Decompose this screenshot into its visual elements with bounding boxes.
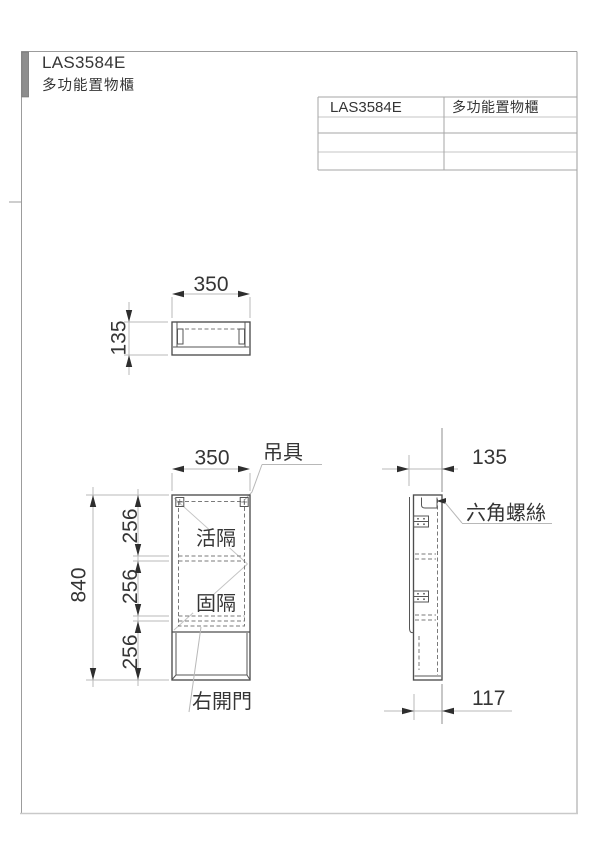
hex-screw-label: 六角螺絲	[466, 502, 546, 525]
header-product-name: 多功能置物櫃	[42, 77, 135, 94]
dim-arrow	[238, 466, 250, 472]
top-view-width-value: 350	[193, 273, 228, 296]
dim-arrow	[442, 708, 454, 714]
shelf-labels: 活隔 固隔	[193, 527, 237, 615]
side-view-cabinet-outline	[410, 495, 443, 680]
hanger-label: 吊具	[263, 442, 303, 464]
header-model-code: LAS3584E	[42, 53, 126, 72]
side-view: 135	[382, 428, 552, 724]
front-view-width-value: 350	[194, 447, 229, 470]
total-height-value: 840	[68, 567, 91, 602]
dim-arrow	[135, 544, 141, 556]
dim-arrow	[135, 495, 141, 507]
fixed-shelf-label: 固隔	[196, 592, 236, 615]
dim-arrow	[126, 355, 132, 367]
dim-arrow	[172, 291, 184, 297]
dim-arrow	[442, 466, 454, 472]
top-view-cabinet-outline	[172, 322, 250, 355]
front-view-cabinet-outline	[172, 495, 250, 680]
dim-arrow	[238, 291, 250, 297]
table-model-cell: LAS3584E	[330, 99, 402, 116]
top-view-depth-value: 135	[108, 320, 131, 355]
door-label: 右開門	[192, 690, 252, 713]
side-view-depth-dimension: 135	[382, 428, 507, 492]
hanger-bracket-left	[178, 329, 184, 344]
table-product-cell: 多功能置物櫃	[452, 99, 539, 115]
leader-arrow	[437, 498, 447, 504]
hanger-callout: 吊具	[245, 442, 323, 500]
hanger-hardware-right	[240, 498, 248, 507]
drawing-sheet: LAS3584E 多功能置物櫃 LAS3584E 多功能置物櫃 350 135	[0, 0, 600, 863]
movable-shelf-label: 活隔	[196, 527, 236, 550]
segment-bottom-value: 256	[119, 634, 142, 669]
top-view-width-dimension: 350	[172, 273, 250, 318]
shelf-connector-top	[414, 516, 429, 527]
hanger-bracket-side	[422, 498, 438, 509]
dim-arrow	[397, 466, 409, 472]
segment-top-value: 256	[119, 508, 142, 543]
front-view-width-dimension: 350	[172, 447, 250, 492]
dim-arrow	[135, 604, 141, 616]
top-view-depth-dimension: 135	[108, 302, 169, 375]
dim-arrow	[90, 668, 96, 680]
dim-arrow	[90, 495, 96, 507]
binding-bar	[22, 52, 29, 97]
hanger-bracket-right	[239, 329, 245, 344]
front-view-height-dimensions: 840 256 256 256	[68, 487, 170, 687]
sheet-header: LAS3584E 多功能置物櫃	[42, 53, 135, 94]
dim-arrow	[172, 466, 184, 472]
door-callout: 右開門	[189, 627, 252, 713]
segment-mid-value: 256	[119, 569, 142, 604]
side-depth-value: 135	[472, 446, 507, 469]
dim-arrow	[402, 708, 414, 714]
top-view: 350 135	[108, 273, 251, 375]
open-compartment	[176, 633, 247, 675]
hex-screw-callout: 六角螺絲	[437, 498, 553, 525]
inner-depth-value: 117	[472, 687, 505, 710]
technical-drawing: LAS3584E 多功能置物櫃 LAS3584E 多功能置物櫃 350 135	[0, 0, 600, 863]
side-view-inner-depth-dimension: 117	[384, 684, 512, 724]
dim-arrow	[135, 621, 141, 633]
spec-table: LAS3584E 多功能置物櫃	[318, 97, 577, 170]
shelf-connector-bottom	[414, 591, 429, 602]
dim-arrow	[126, 310, 132, 322]
front-view: 350 吊具	[68, 442, 323, 713]
